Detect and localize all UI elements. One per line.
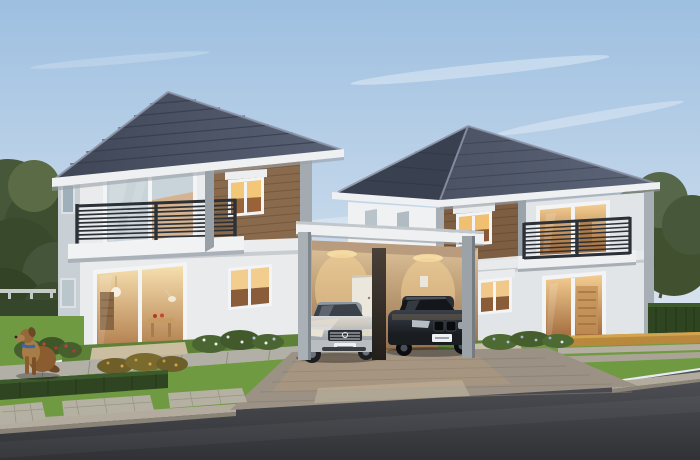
- black-car-headlight-left: [412, 320, 430, 328]
- house-render-image: [0, 0, 700, 460]
- black-car-warm-reflection: [392, 314, 466, 320]
- render-canvas: [0, 0, 700, 460]
- dog-front-leg-2: [32, 357, 36, 375]
- carport-post-center: [372, 248, 386, 360]
- right-house-lower-window: [475, 269, 515, 315]
- dog-collar: [22, 345, 35, 347]
- black-car-grille-right: [446, 321, 456, 331]
- dog-shadow: [16, 373, 60, 380]
- dog-front-leg-1: [25, 356, 29, 374]
- silver-car-headlight-right: [362, 329, 373, 336]
- left-house-lower-window: [225, 256, 275, 310]
- black-car-bumper: [388, 334, 474, 345]
- dog-nose: [15, 336, 18, 339]
- dog-chest: [22, 340, 40, 364]
- black-car-grille-left: [434, 321, 444, 331]
- carport-keypad: [420, 276, 428, 287]
- silver-car-intake: [322, 347, 366, 351]
- interior-table: [148, 318, 174, 323]
- floor-lamp: [168, 296, 176, 302]
- left-house-sliding-door: [93, 262, 187, 354]
